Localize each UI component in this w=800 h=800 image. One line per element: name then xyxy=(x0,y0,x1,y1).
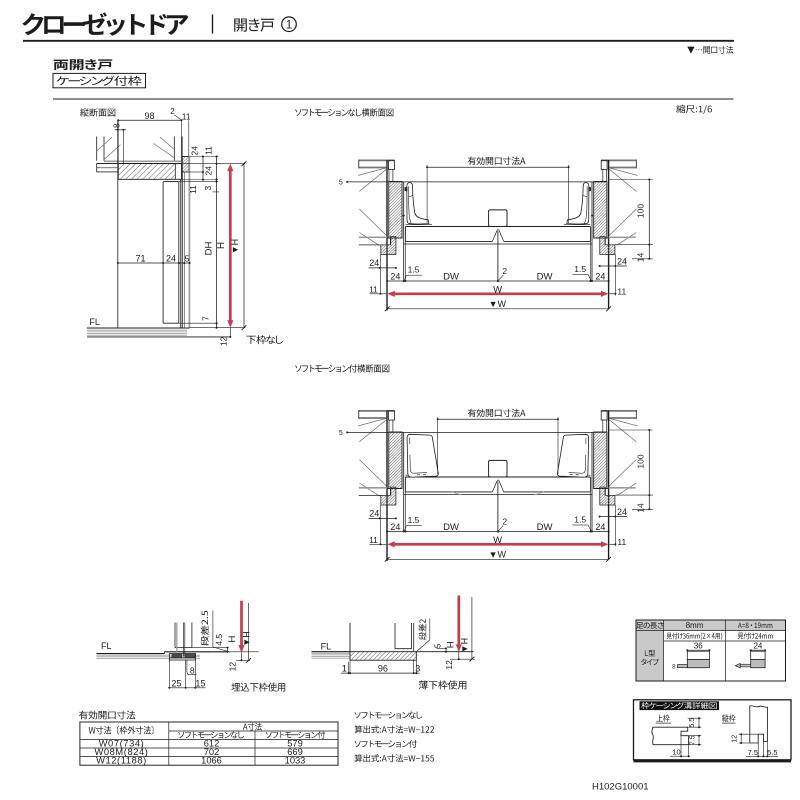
svg-text:▼W: ▼W xyxy=(489,299,507,309)
svg-text:5: 5 xyxy=(185,254,190,264)
svg-text:1033: 1033 xyxy=(285,756,306,766)
svg-text:1.5: 1.5 xyxy=(408,265,420,275)
svg-text:24: 24 xyxy=(166,253,176,263)
svg-text:12: 12 xyxy=(219,336,229,346)
svg-text:11: 11 xyxy=(369,535,378,545)
svg-text:11: 11 xyxy=(204,146,214,155)
svg-text:8: 8 xyxy=(113,123,122,128)
svg-text:4.5: 4.5 xyxy=(214,634,224,646)
svg-text:5: 5 xyxy=(339,430,343,437)
svg-text:5.5: 5.5 xyxy=(767,748,777,757)
svg-text:24: 24 xyxy=(369,258,379,268)
svg-text:24: 24 xyxy=(595,271,605,281)
svg-text:▼W: ▼W xyxy=(489,549,507,559)
svg-text:DW: DW xyxy=(537,272,553,283)
svg-text:24: 24 xyxy=(203,166,213,176)
svg-text:FL: FL xyxy=(321,641,332,651)
svg-text:96: 96 xyxy=(378,664,388,674)
svg-text:25: 25 xyxy=(171,678,181,688)
svg-text:3: 3 xyxy=(203,186,213,191)
svg-text:FL: FL xyxy=(101,641,112,651)
svg-text:11: 11 xyxy=(369,285,378,295)
svg-text:2: 2 xyxy=(502,516,507,526)
svg-text:DW: DW xyxy=(443,272,459,283)
svg-text:24: 24 xyxy=(369,509,379,519)
svg-text:71: 71 xyxy=(135,253,145,263)
svg-text:H: H xyxy=(227,635,238,642)
svg-text:24: 24 xyxy=(390,522,400,532)
svg-text:DH: DH xyxy=(204,242,215,256)
svg-text:1: 1 xyxy=(342,664,347,674)
svg-text:FL: FL xyxy=(89,317,100,327)
svg-text:▼H: ▼H xyxy=(242,631,252,646)
svg-text:DW: DW xyxy=(537,522,553,533)
svg-text:98: 98 xyxy=(144,111,154,121)
svg-text:12: 12 xyxy=(444,660,454,670)
svg-text:H: H xyxy=(446,641,457,648)
svg-text:H: H xyxy=(216,242,227,249)
svg-text:▼H: ▼H xyxy=(230,239,240,254)
svg-text:H102G10001: H102G10001 xyxy=(592,781,649,792)
svg-text:DW: DW xyxy=(443,522,459,533)
svg-text:7.5: 7.5 xyxy=(689,735,696,745)
svg-text:7: 7 xyxy=(201,316,211,321)
svg-text:1066: 1066 xyxy=(201,756,222,766)
svg-text:3: 3 xyxy=(415,664,420,674)
svg-text:24: 24 xyxy=(595,522,605,532)
svg-text:5: 5 xyxy=(339,179,343,186)
svg-text:5.5: 5.5 xyxy=(689,718,696,728)
svg-text:14: 14 xyxy=(635,253,645,263)
svg-text:100: 100 xyxy=(636,454,646,468)
svg-text:100: 100 xyxy=(636,204,646,218)
svg-text:1.5: 1.5 xyxy=(574,264,586,274)
svg-text:15: 15 xyxy=(195,678,205,688)
svg-text:36: 36 xyxy=(694,642,703,651)
svg-text:11: 11 xyxy=(182,112,191,122)
svg-text:2: 2 xyxy=(502,266,507,276)
svg-text:2: 2 xyxy=(170,107,175,116)
svg-text:14: 14 xyxy=(635,503,645,513)
svg-text:1.5: 1.5 xyxy=(408,515,420,525)
svg-text:8mm: 8mm xyxy=(686,621,704,630)
svg-text:11: 11 xyxy=(617,537,626,547)
svg-text:1.5: 1.5 xyxy=(574,515,586,525)
svg-text:24: 24 xyxy=(617,256,627,266)
svg-text:W12(1188): W12(1188) xyxy=(96,756,147,766)
svg-text:▼H: ▼H xyxy=(460,638,470,653)
svg-text:24: 24 xyxy=(617,507,627,517)
svg-text:7.5: 7.5 xyxy=(748,748,758,757)
svg-text:10: 10 xyxy=(672,748,680,757)
svg-text:24: 24 xyxy=(753,642,762,651)
svg-text:24: 24 xyxy=(190,146,200,156)
svg-text:11: 11 xyxy=(188,185,198,194)
svg-text:W: W xyxy=(493,535,502,546)
svg-text:24: 24 xyxy=(390,271,400,281)
svg-text:8: 8 xyxy=(190,666,195,676)
svg-text:W: W xyxy=(493,284,502,295)
svg-text:11: 11 xyxy=(617,287,626,297)
svg-text:1: 1 xyxy=(286,19,292,31)
svg-text:12: 12 xyxy=(731,735,738,743)
svg-text:5: 5 xyxy=(434,643,443,648)
svg-text:12: 12 xyxy=(227,662,237,672)
